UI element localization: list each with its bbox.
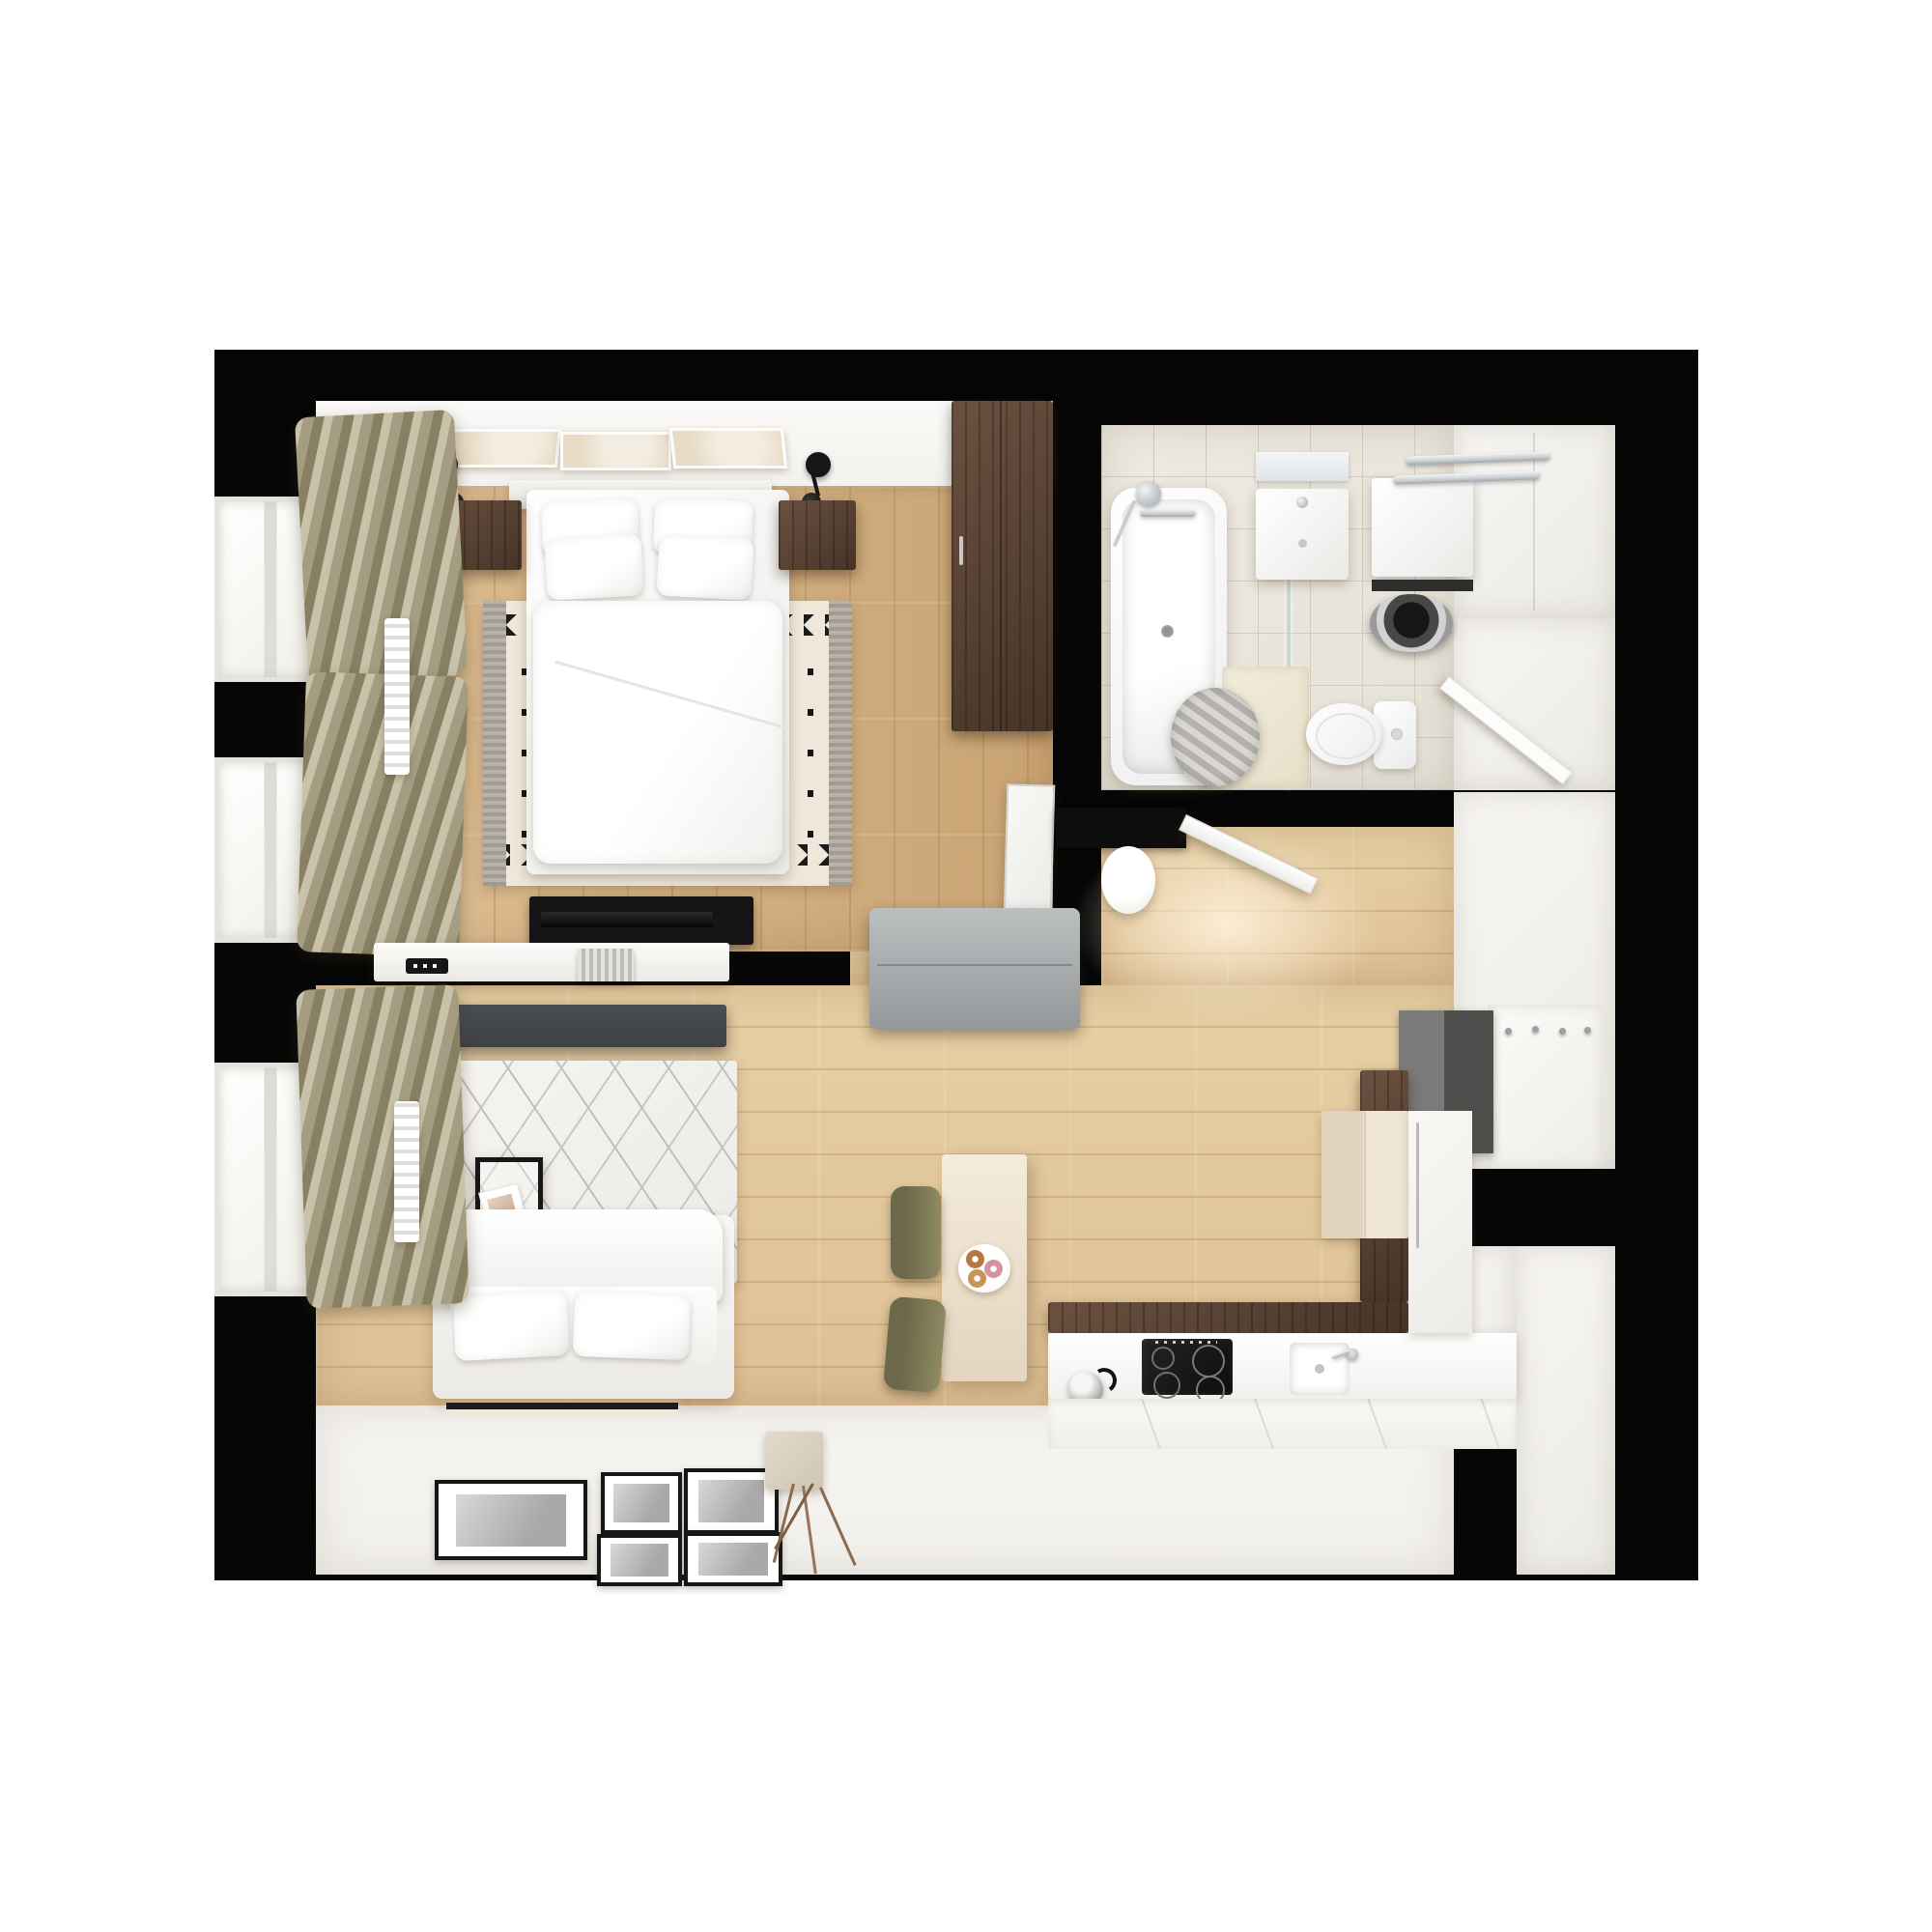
rug-dot-column bbox=[808, 649, 813, 838]
duvet-fold bbox=[554, 661, 787, 730]
walnut-counter-horizontal bbox=[1048, 1302, 1408, 1333]
seat-cushion bbox=[573, 1291, 691, 1360]
donut bbox=[966, 1250, 984, 1268]
sink-drain bbox=[1315, 1364, 1324, 1374]
walnut-wardrobe bbox=[952, 401, 1053, 731]
picture-frame bbox=[684, 1532, 782, 1586]
washer-drum bbox=[1370, 594, 1453, 652]
coat-hook bbox=[1505, 1028, 1512, 1035]
donut bbox=[968, 1269, 986, 1288]
induction-hob bbox=[1142, 1339, 1233, 1395]
donut bbox=[984, 1260, 1003, 1278]
hand-shower-icon bbox=[1136, 481, 1161, 506]
towel-basket bbox=[1171, 688, 1260, 786]
tub-faucet bbox=[1140, 509, 1196, 517]
soundbar bbox=[406, 958, 448, 974]
bed-pillow bbox=[544, 533, 643, 600]
hob-controls bbox=[1155, 1341, 1217, 1344]
frame-photo bbox=[698, 1480, 764, 1521]
kitchen-sink bbox=[1290, 1343, 1350, 1395]
vanity-mirror bbox=[1256, 452, 1349, 481]
sink-drain bbox=[1298, 539, 1307, 548]
donut-plate bbox=[958, 1244, 1010, 1293]
round-pouf bbox=[1101, 846, 1155, 914]
artwork-panel bbox=[669, 428, 787, 469]
soundbar-lights bbox=[413, 964, 440, 968]
floorplan-render bbox=[0, 0, 1932, 1932]
tv bbox=[541, 912, 713, 927]
duvet bbox=[533, 601, 782, 864]
toilet-seat-line bbox=[1316, 713, 1376, 759]
cabinet-seam bbox=[1364, 1111, 1366, 1238]
sink-faucet bbox=[1296, 497, 1308, 508]
beige-cabinet-block bbox=[1321, 1111, 1408, 1238]
washer-slot bbox=[1372, 580, 1473, 591]
cabinet-handle bbox=[1416, 1122, 1419, 1248]
tall-cabinet bbox=[1408, 1111, 1472, 1333]
roman-curtain bbox=[297, 671, 469, 957]
coat-hook bbox=[1559, 1028, 1566, 1035]
nightstand-right bbox=[779, 500, 856, 570]
living-radiator bbox=[394, 1101, 419, 1242]
frame-photo bbox=[698, 1543, 767, 1577]
coat-hook bbox=[1532, 1026, 1539, 1033]
gray-bench bbox=[869, 908, 1080, 1030]
storage-box bbox=[765, 1432, 823, 1490]
frame-photo bbox=[613, 1484, 669, 1522]
rug-fringe-left bbox=[483, 601, 506, 886]
driftwood-branch bbox=[819, 1487, 857, 1566]
wardrobe-handle bbox=[959, 536, 963, 565]
bar-chair bbox=[883, 1296, 947, 1394]
vanity-sink bbox=[1256, 489, 1349, 580]
media-cabinet bbox=[415, 1005, 726, 1047]
rug-fringe-right bbox=[829, 601, 852, 886]
bathtub-drain bbox=[1161, 625, 1174, 638]
picture-frame bbox=[435, 1480, 587, 1560]
driftwood-decor bbox=[773, 1484, 860, 1580]
coat-hook bbox=[1584, 1027, 1591, 1034]
ribbed-decor bbox=[578, 949, 634, 981]
burner bbox=[1151, 1347, 1175, 1370]
roman-curtain bbox=[295, 410, 468, 683]
toilet bbox=[1306, 699, 1420, 773]
artwork-panel bbox=[560, 432, 671, 470]
picture-frame bbox=[597, 1534, 682, 1586]
seat-cushion bbox=[452, 1290, 569, 1361]
frame-photo bbox=[611, 1544, 669, 1576]
picture-frame bbox=[601, 1472, 682, 1534]
led-floor-strip bbox=[446, 1403, 678, 1409]
base-cabinet-fronts bbox=[1048, 1399, 1517, 1449]
bedroom-radiator bbox=[384, 618, 410, 775]
sconce-base bbox=[806, 452, 831, 477]
bed-pillow bbox=[656, 533, 753, 600]
upper-cabinet-column bbox=[1517, 1246, 1615, 1575]
double-bed bbox=[526, 490, 789, 874]
roman-curtain bbox=[296, 984, 469, 1309]
wall-notch bbox=[1565, 1170, 1698, 1247]
washing-machine bbox=[1372, 478, 1473, 577]
wardrobe-door-seam bbox=[1000, 401, 1002, 731]
burner bbox=[1153, 1372, 1180, 1399]
entry-door-frame bbox=[1056, 808, 1186, 848]
burner bbox=[1192, 1345, 1225, 1378]
coat-hook-panel bbox=[1488, 1005, 1604, 1169]
bar-chair bbox=[891, 1186, 941, 1279]
white-countertop bbox=[1048, 1333, 1517, 1399]
flush-button bbox=[1391, 728, 1403, 740]
frame-photo bbox=[456, 1494, 566, 1547]
bench-seam bbox=[877, 964, 1072, 966]
